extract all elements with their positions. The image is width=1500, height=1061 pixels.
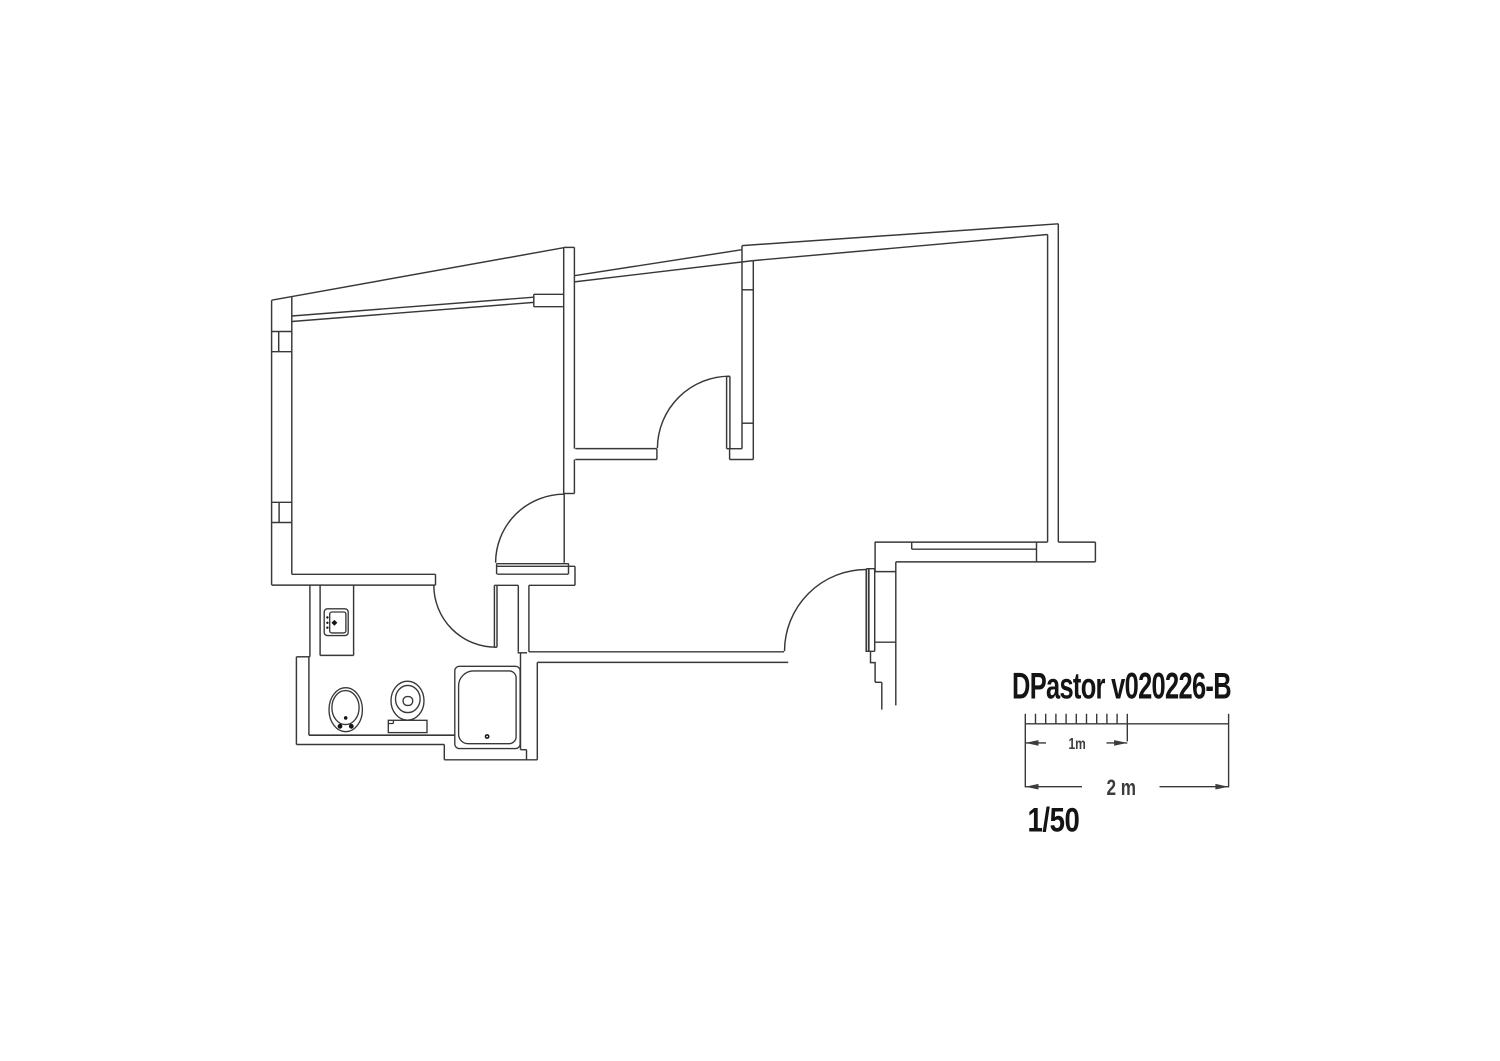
svg-text:1m: 1m <box>1069 734 1086 752</box>
svg-text:2 m: 2 m <box>1107 776 1137 801</box>
svg-text:1/50: 1/50 <box>1028 801 1080 839</box>
svg-text:DPastor v020226-B: DPastor v020226-B <box>1012 665 1231 707</box>
